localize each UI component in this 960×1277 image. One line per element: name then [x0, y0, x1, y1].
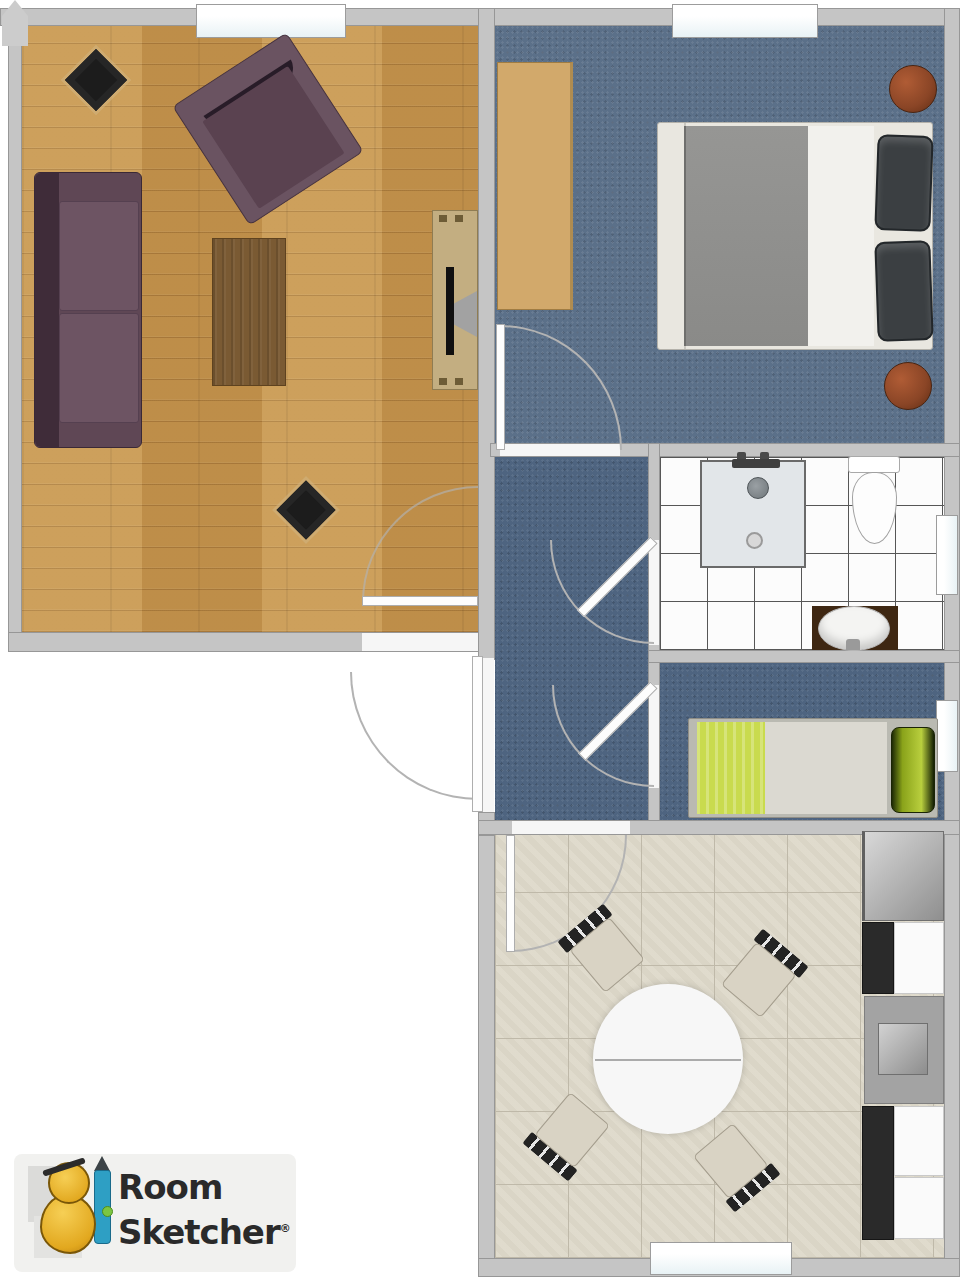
double-bed: [657, 122, 933, 350]
door-bedroom: [496, 324, 505, 450]
bed-pillow: [874, 240, 933, 342]
pouf: [884, 362, 932, 410]
sofa-cushion: [59, 313, 139, 423]
tv: [446, 267, 454, 355]
door-arc-entry: [350, 672, 478, 800]
counter-white: [894, 1106, 944, 1176]
wall-bathroom-bottom: [648, 650, 960, 663]
window-small-bedroom: [936, 700, 958, 772]
sofa-cushion: [59, 201, 139, 311]
counter-black: [862, 922, 894, 994]
registered-mark: ®: [280, 1222, 291, 1235]
bed-pillow: [874, 134, 933, 232]
shower: [700, 460, 806, 568]
bed-sheet: [808, 126, 874, 346]
shower-drain: [746, 532, 763, 549]
sink-faucet: [846, 639, 860, 650]
single-bed: [688, 718, 938, 818]
wall-right: [944, 8, 960, 1277]
wall-left: [8, 8, 22, 652]
window-bathroom: [936, 515, 958, 595]
roomsketcher-logo: Room Sketcher®: [14, 1154, 296, 1272]
kitchen-sink-basin: [878, 1023, 928, 1075]
window-bedroom: [672, 4, 818, 38]
wall-cap: [2, 0, 28, 46]
toilet-tank: [848, 456, 900, 473]
wall-center-upper: [478, 8, 495, 660]
door-kitchen: [506, 835, 515, 952]
bed-blanket: [684, 126, 810, 346]
shower-head-icon: [747, 477, 769, 499]
pencil-tip-icon: [94, 1156, 110, 1171]
pencil-dot: [102, 1206, 113, 1217]
window-kitchen: [650, 1242, 792, 1275]
counter-white: [894, 922, 944, 994]
table-seam: [595, 1059, 741, 1061]
counter-white: [894, 1177, 944, 1239]
single-bed-blanket: [697, 722, 765, 814]
pouf: [889, 65, 937, 113]
wall-kitchen-left: [478, 835, 495, 1277]
tv-cabinet: [432, 210, 478, 390]
single-bed-pillow: [891, 727, 935, 813]
tv-bracket: [453, 291, 477, 337]
doorway-kitchen: [512, 821, 630, 834]
cabinet-knobs: [439, 378, 471, 385]
shower-fixture: [732, 459, 780, 468]
logo-text: Room Sketcher®: [118, 1166, 291, 1253]
bed-footboard: [658, 123, 686, 349]
door-living-room: [362, 596, 478, 606]
sofa: [34, 172, 142, 448]
cabinet-knobs: [439, 215, 471, 222]
area-rug: [212, 238, 286, 386]
door-entry: [472, 656, 483, 812]
window-living-room: [196, 4, 346, 38]
doorway-living-room: [362, 633, 478, 651]
sofa-back: [35, 173, 59, 447]
dining-table: [593, 984, 743, 1134]
logo-word-room: Room: [118, 1166, 291, 1208]
fridge: [862, 831, 944, 921]
floor-plan: Room Sketcher®: [0, 0, 960, 1277]
logo-word-sketcher: Sketcher®: [118, 1208, 291, 1253]
counter-black: [862, 1106, 894, 1240]
desk: [497, 62, 573, 310]
kitchen-sink-unit: [864, 996, 944, 1104]
single-bed-mattress: [765, 722, 887, 814]
